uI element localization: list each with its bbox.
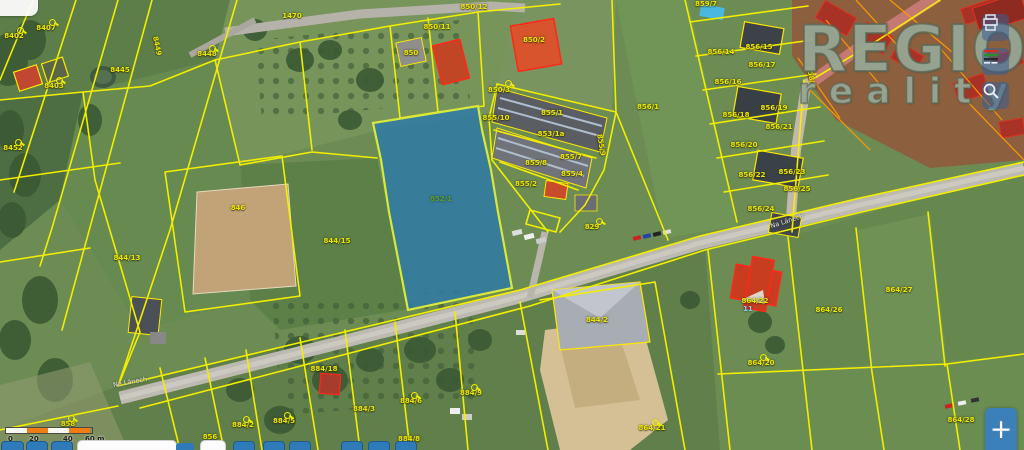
- parcel-label: 855/8: [525, 159, 547, 167]
- search-icon: [982, 82, 1000, 100]
- parcel-label: 864/22: [742, 297, 769, 305]
- parcel-label: 856/1: [637, 103, 659, 111]
- parcel-marker-icon: [760, 354, 767, 361]
- partial-input-2[interactable]: [200, 440, 226, 450]
- parcel-label: 855/1: [541, 109, 563, 117]
- parcel-label: 855/4: [561, 170, 583, 178]
- parcel-label: 864/28: [948, 416, 975, 424]
- parcel-label: 850/3: [488, 86, 510, 94]
- parcel-label: 852/1: [430, 195, 452, 203]
- partial-button-9[interactable]: [368, 441, 390, 450]
- parcel-label: 846: [231, 204, 246, 212]
- parcel-label: 864/26: [816, 306, 843, 314]
- partial-button-10[interactable]: [395, 441, 417, 450]
- parcel-label: 884/3: [353, 405, 375, 413]
- parcel-marker-icon: [56, 77, 63, 84]
- parcel-label: 856/17: [749, 61, 776, 69]
- parcel-label: 856/20: [731, 141, 758, 149]
- print-button[interactable]: [982, 14, 1009, 41]
- partial-button-2[interactable]: [26, 441, 48, 450]
- parcel-label: 856/19: [761, 104, 788, 112]
- print-icon: [982, 14, 999, 31]
- parcel-label: 856/21: [766, 123, 793, 131]
- parcel-label: 856/24: [748, 205, 775, 213]
- parcel-label: 856/14: [708, 48, 735, 56]
- parcel-label: 11: [743, 305, 753, 313]
- parcel-marker-icon: [243, 416, 250, 423]
- parcel-label: 844/15: [324, 237, 351, 245]
- parcel-label: 1470: [282, 12, 301, 20]
- partial-button-4[interactable]: [176, 443, 194, 450]
- parcel-marker-icon: [471, 384, 478, 391]
- parcel-label: 855/10: [483, 114, 510, 122]
- parcel-marker-icon: [15, 139, 22, 146]
- parcel-marker-icon: [209, 45, 216, 52]
- parcel-label: 850/11: [424, 23, 451, 31]
- parcel-label: 856/16: [715, 78, 742, 86]
- map-legend-icon: [982, 48, 1000, 66]
- parcel-label: 853/1a: [538, 130, 565, 138]
- parcel-label: 864/27: [886, 286, 913, 294]
- aerial-map[interactable]: [0, 0, 1024, 450]
- map-viewport[interactable]: 8402840784498448844584038452844/13846844…: [0, 0, 1024, 450]
- parcel-label: 856/15: [746, 43, 773, 51]
- parcel-label: 850/12: [461, 3, 488, 11]
- partial-control-topleft[interactable]: [0, 0, 38, 16]
- partial-button-3[interactable]: [51, 441, 73, 450]
- parcel-label: 855/7: [560, 153, 582, 161]
- partial-button-6[interactable]: [263, 441, 285, 450]
- parcel-marker-icon: [17, 27, 24, 34]
- parcel-marker-icon: [68, 415, 75, 422]
- parcel-label: 8445: [110, 66, 129, 74]
- partial-button-1[interactable]: [1, 441, 24, 450]
- parcel-label: 884/18: [311, 365, 338, 373]
- parcel-label: 855/2: [515, 180, 537, 188]
- parcel-label: 856/22: [739, 171, 766, 179]
- zoom-in-label: +: [990, 408, 1013, 450]
- parcel-label: 856/23: [779, 168, 806, 176]
- partial-button-5[interactable]: [233, 441, 255, 450]
- parcel-marker-icon: [596, 218, 603, 225]
- map-legend-button[interactable]: [982, 48, 1009, 75]
- search-button[interactable]: [982, 82, 1009, 109]
- zoom-in-button[interactable]: +: [985, 408, 1017, 450]
- parcel-label: 844/2: [586, 316, 608, 324]
- partial-button-7[interactable]: [289, 441, 311, 450]
- parcel-marker-icon: [505, 80, 512, 87]
- parcel-label: 859/7: [695, 0, 717, 8]
- partial-button-8[interactable]: [341, 441, 363, 450]
- parcel-label: 844/13: [114, 254, 141, 262]
- parcel-label: 856/25: [784, 185, 811, 193]
- parcel-label: 856/18: [723, 111, 750, 119]
- parcel-label: 850/2: [523, 36, 545, 44]
- partial-input-1[interactable]: [77, 440, 177, 450]
- parcel-marker-icon: [411, 392, 418, 399]
- scale-bar-segments: [5, 427, 93, 434]
- parcel-marker-icon: [49, 19, 56, 26]
- parcel-label: 850: [404, 49, 419, 57]
- parcel-marker-icon: [652, 419, 659, 426]
- parcel-marker-icon: [284, 412, 291, 419]
